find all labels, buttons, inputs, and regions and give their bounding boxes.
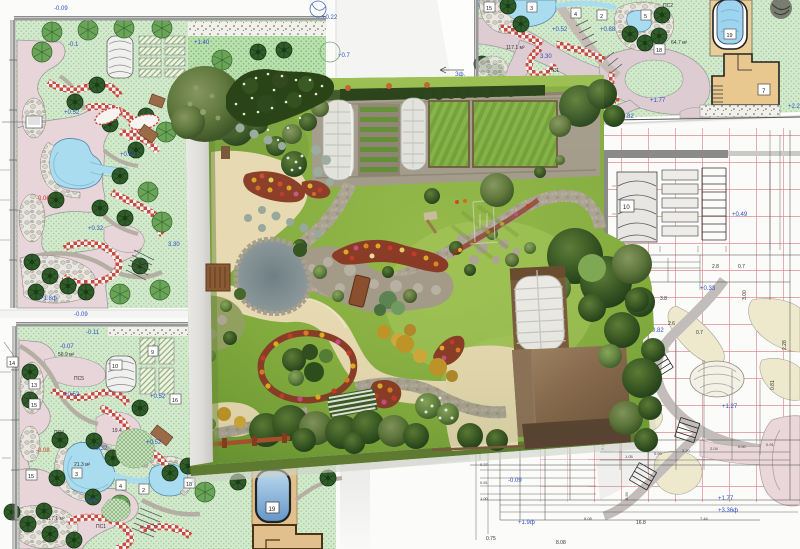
svg-text:+0.32: +0.32 [88,226,104,232]
svg-text:15: 15 [28,474,34,480]
svg-text:4: 4 [119,484,122,490]
svg-text:+0.33: +0.33 [700,286,716,292]
svg-text:+0.52: +0.52 [552,27,568,33]
svg-text:7.44: 7.44 [700,516,709,521]
svg-text:3.00: 3.00 [742,290,748,300]
svg-text:0.50: 0.50 [738,444,747,449]
svg-text:21.3 м²: 21.3 м² [74,462,91,468]
svg-text:0.7: 0.7 [696,330,703,336]
svg-text:2: 2 [142,488,145,494]
svg-text:+0.52: +0.52 [146,440,162,446]
svg-text:2.04: 2.04 [710,446,719,451]
svg-text:-0.06: -0.06 [36,196,50,202]
svg-text:+0.52: +0.52 [64,110,80,116]
svg-text:2: 2 [600,14,603,20]
svg-text:117.1 м²: 117.1 м² [506,45,525,51]
svg-text:3.30: 3.30 [86,498,98,504]
svg-text:19.4: 19.4 [112,428,122,434]
svg-text:18: 18 [656,48,662,54]
svg-text:-0.09: -0.09 [508,478,522,484]
svg-text:0.7: 0.7 [738,264,745,270]
svg-text:+0.52: +0.52 [150,394,166,400]
svg-text:+0.22: +0.22 [322,15,338,21]
svg-text:4: 4 [574,12,577,18]
svg-text:6.08: 6.08 [584,516,593,521]
svg-text:0.81: 0.81 [770,380,776,390]
svg-text:3.30: 3.30 [168,242,180,248]
svg-text:15: 15 [31,403,37,409]
svg-text:+0.49: +0.49 [732,212,748,218]
svg-text:+0.52: +0.52 [120,152,136,158]
svg-text:18: 18 [186,482,192,488]
svg-text:+0.32: +0.32 [92,446,108,452]
svg-text:3: 3 [530,6,533,12]
svg-text:8.08: 8.08 [556,540,566,546]
svg-text:15: 15 [486,6,492,12]
svg-text:56.9 м²: 56.9 м² [58,352,75,358]
svg-text:9: 9 [151,350,154,356]
svg-text:16: 16 [172,398,178,404]
svg-text:2.28: 2.28 [782,340,788,350]
svg-text:0.81: 0.81 [480,480,489,485]
svg-text:+2.2: +2.2 [788,104,800,110]
svg-text:-0.09: -0.09 [54,6,68,12]
svg-text:+0.52: +0.52 [64,392,80,398]
svg-text:10: 10 [112,364,118,370]
svg-text:19: 19 [727,33,733,39]
svg-text:ПС2: ПС2 [663,3,673,9]
svg-text:14: 14 [9,361,15,367]
svg-text:+0.88: +0.88 [600,27,616,33]
svg-text:+1.27: +1.27 [722,404,738,410]
svg-text:1.00: 1.00 [480,496,489,501]
svg-text:+1.77: +1.77 [650,98,666,104]
svg-text:+3.36ф: +3.36ф [718,508,738,514]
svg-text:0.99: 0.99 [654,451,663,456]
svg-text:ПС5: ПС5 [74,376,84,382]
svg-text:3.20: 3.20 [682,448,691,453]
svg-text:+1.9ф: +1.9ф [518,520,535,526]
svg-text:64.7 м²: 64.7 м² [671,40,688,46]
svg-text:ПС4: ПС4 [54,430,64,436]
svg-text:1.05: 1.05 [625,454,634,459]
svg-text:13: 13 [31,383,37,389]
svg-text:5: 5 [644,14,647,20]
svg-text:10: 10 [623,205,630,211]
svg-text:8.59: 8.59 [624,491,629,500]
svg-text:-0.08: -0.08 [36,448,50,454]
svg-text:2.8: 2.8 [712,264,719,270]
svg-text:ПС1: ПС1 [549,68,559,74]
svg-text:+1.8ф.: +1.8ф. [40,296,59,302]
svg-text:19: 19 [269,507,276,513]
svg-text:-0.11: -0.11 [86,330,100,336]
svg-text:ПС1: ПС1 [96,524,106,530]
svg-text:117.1 м²: 117.1 м² [46,516,65,522]
svg-text:2.6: 2.6 [668,321,675,327]
svg-text:-0.07: -0.07 [60,344,74,350]
svg-text:+1.77: +1.77 [718,496,734,502]
svg-text:3.8: 3.8 [660,296,667,302]
svg-text:3: 3 [75,472,78,478]
svg-text:0.91: 0.91 [766,442,775,447]
svg-text:0.37: 0.37 [480,462,489,467]
svg-text:+1.40: +1.40 [194,40,210,46]
svg-text:-0.09: -0.09 [74,312,88,318]
svg-text:16.8: 16.8 [636,520,646,526]
svg-text:3.30: 3.30 [540,54,552,60]
svg-text:0.75: 0.75 [486,536,496,542]
svg-text:-0.1: -0.1 [68,42,79,48]
